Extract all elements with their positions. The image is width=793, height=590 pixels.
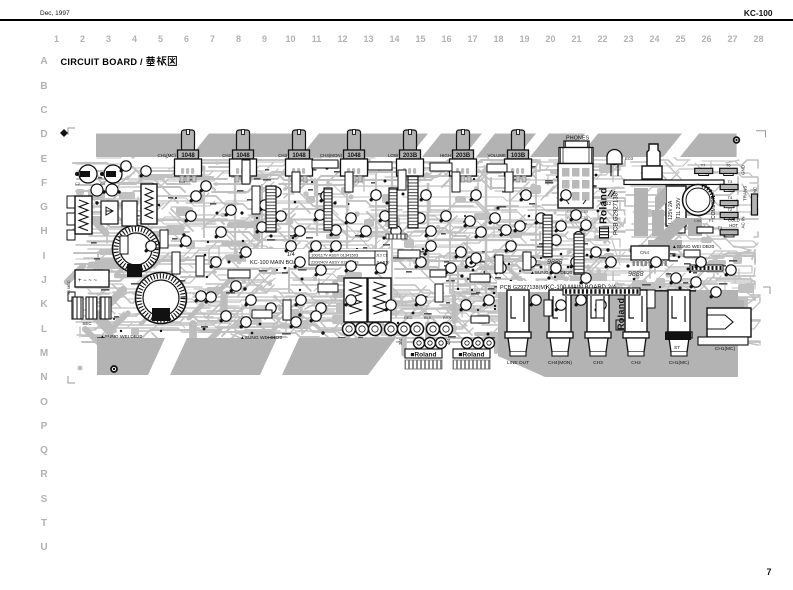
svg-text:C90: C90 — [694, 218, 702, 223]
svg-text:T1: T1 — [718, 225, 723, 230]
svg-text:AC IN: AC IN — [741, 216, 746, 228]
svg-text:T7: T7 — [701, 163, 706, 168]
svg-text:■Roland: ■Roland — [459, 352, 485, 359]
svg-text:T4: T4 — [728, 195, 733, 200]
svg-text:203B: 203B — [456, 153, 471, 159]
svg-text:CH4(MON): CH4(MON) — [320, 153, 342, 158]
svg-text:T3: T3 — [728, 179, 733, 184]
svg-text:E03: E03 — [625, 156, 634, 161]
svg-text:J13 C1: J13 C1 — [376, 254, 387, 258]
svg-text:VOLUME: VOLUME — [487, 153, 506, 158]
svg-text:CN4: CN4 — [640, 250, 649, 255]
svg-text:COLD: COLD — [728, 218, 740, 223]
svg-text:SEC: SEC — [82, 321, 92, 326]
svg-text:C50: C50 — [581, 210, 588, 214]
svg-text:CH1(MC): CH1(MC) — [715, 346, 736, 352]
svg-text:ST: ST — [674, 345, 680, 351]
svg-text:1048: 1048 — [292, 153, 306, 159]
svg-text:CH1(MC): CH1(MC) — [157, 153, 176, 158]
svg-text:Roland: Roland — [598, 187, 610, 224]
svg-text:CH2: CH2 — [222, 153, 231, 158]
svg-text:1048: 1048 — [236, 153, 250, 159]
svg-text:1048: 1048 — [181, 153, 195, 159]
svg-text:RED: RED — [404, 315, 413, 320]
svg-text:BRN: BRN — [443, 315, 452, 320]
svg-text:LOW: LOW — [388, 153, 399, 158]
svg-text:HIGH: HIGH — [440, 153, 451, 158]
svg-text:SB MED: SB MED — [67, 280, 71, 295]
svg-text:COMMON: COMMON — [711, 195, 717, 219]
svg-text:1048: 1048 — [347, 153, 361, 159]
svg-text:■Roland: ■Roland — [411, 352, 437, 359]
svg-text:▲SUNG WEI DB20: ▲SUNG WEI DB20 — [672, 244, 715, 250]
svg-text:BLK: BLK — [424, 315, 432, 320]
svg-text:CH1(MC): CH1(MC) — [669, 360, 690, 366]
svg-text:103B: 103B — [511, 153, 526, 159]
svg-text:TRANS: TRANS — [742, 186, 747, 201]
svg-text:203B: 203B — [403, 153, 418, 159]
svg-text:PCB G2927138: PCB G2927138 — [614, 192, 620, 235]
svg-text:T6: T6 — [726, 163, 731, 168]
svg-text:GND: GND — [741, 164, 746, 175]
svg-text:+ − ~ ~: + − ~ ~ — [78, 278, 98, 284]
svg-text:CH3: CH3 — [593, 360, 603, 366]
svg-text:T2: T2 — [728, 207, 733, 212]
svg-text:▲SUNG WEI DB20: ▲SUNG WEI DB20 — [240, 335, 283, 341]
svg-text:CH4(MON): CH4(MON) — [548, 360, 572, 366]
svg-text:C4: C4 — [100, 181, 106, 186]
svg-text:1/4: 1/4 — [287, 252, 295, 258]
svg-text:100/117V ASSY 01341503: 100/117V ASSY 01341503 — [311, 253, 359, 258]
svg-text:CH2: CH2 — [631, 360, 641, 366]
svg-text:L 125V 2A: L 125V 2A — [668, 200, 674, 224]
svg-text:NC: NC — [753, 187, 758, 193]
svg-text:CH3: CH3 — [278, 153, 287, 158]
svg-text:9888: 9888 — [628, 271, 644, 278]
svg-text:C2: C2 — [75, 181, 81, 186]
svg-text:3/4: 3/4 — [398, 338, 403, 345]
svg-text:▲SUNG WEI DB20: ▲SUNG WEI DB20 — [100, 334, 143, 340]
svg-text:HOT: HOT — [729, 223, 738, 228]
svg-text:LINE OUT: LINE OUT — [507, 360, 529, 366]
svg-text:4/4: 4/4 — [446, 338, 451, 345]
